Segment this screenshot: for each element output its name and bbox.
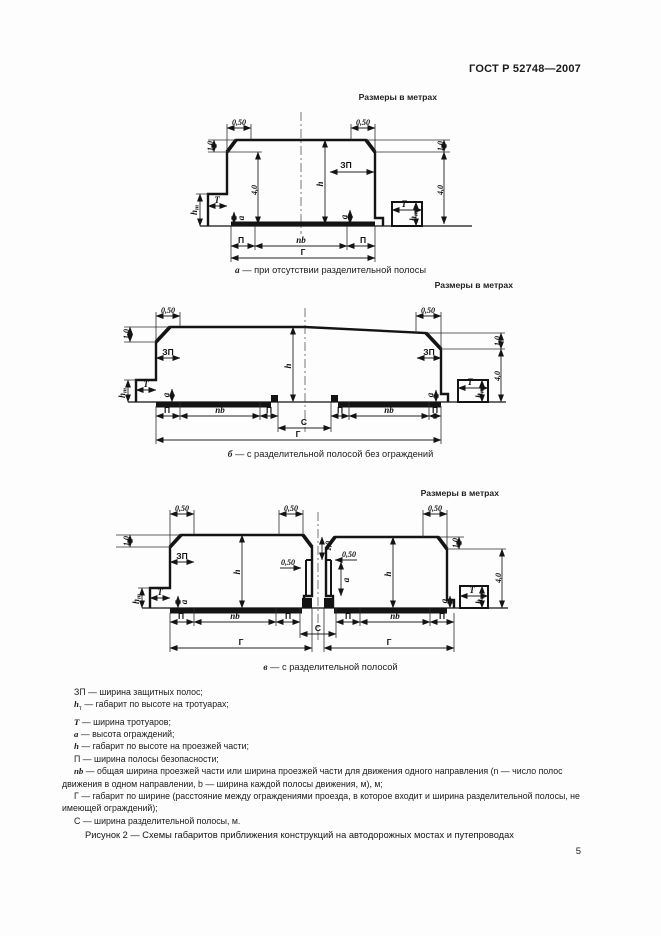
var-label-T: Т (143, 379, 149, 389)
units-note-v: Размеры в метрах (421, 488, 499, 498)
caption-diagram-v: в — с разделительной полосой (0, 662, 661, 673)
var-label-ht: hт (474, 388, 486, 398)
var-label-T: Т (469, 585, 475, 595)
dim-label: 0,50 (356, 118, 370, 127)
dim-label: 0,50 (342, 550, 356, 559)
chamfer-edges (156, 327, 441, 349)
label-P: П (266, 405, 272, 415)
var-label-a: а (339, 214, 349, 219)
clearance-outline-left (150, 535, 312, 608)
var-label-a: а (425, 392, 435, 397)
caption-text-a: — при отсутствии разделительной полосы (242, 265, 426, 275)
legend-term: П (74, 754, 80, 764)
label-P: П (439, 611, 445, 621)
var-label-nb: nb (390, 611, 400, 621)
diagram-b-median-no-barriers: 0,50 0,50 1,0 1,0 4,0 ЗП ЗП h hт Т а а Т… (98, 294, 563, 454)
label-G: Г (296, 429, 301, 439)
var-label-nb: nb (296, 235, 306, 245)
units-note-a: Размеры в метрах (359, 92, 437, 102)
dim-label: 0,50 (428, 504, 442, 513)
legend-item: Г — габарит по ширине (расстояние между … (62, 790, 602, 815)
dim-label: 4,0 (250, 185, 259, 196)
dim-label: 1,0 (493, 336, 502, 346)
label-zp: ЗП (423, 347, 434, 357)
var-label-h: h (315, 181, 325, 186)
label-P: П (164, 405, 170, 415)
var-label-T: Т (467, 377, 473, 387)
caption-letter-v: в (263, 663, 267, 673)
diagram-v-median-with-barriers: 0,50 0,50 0,50 1,0 1,0 0,50 0,50 а ЗП h … (98, 500, 563, 660)
legend-text: — высота ограждений; (81, 729, 175, 739)
legend-text: — габарит по высоте на тротуарах; (84, 699, 228, 709)
var-label-a: а (236, 215, 246, 220)
var-label-T: Т (157, 587, 163, 597)
caption-diagram-b: б — с разделительной полосой без огражде… (0, 449, 661, 460)
var-label-ht: hт (117, 388, 129, 398)
median-curb (271, 395, 278, 402)
caption-text-v: — с разделительной полосой (270, 662, 398, 672)
var-label-h: h (283, 363, 293, 368)
legend-text: — габарит по ширине (расстояние между ог… (62, 791, 580, 813)
var-label-a: а (341, 577, 351, 582)
label-G: Г (387, 637, 392, 647)
label-G: Г (301, 247, 306, 257)
label-P: П (285, 611, 291, 621)
legend-term: Т (74, 717, 79, 727)
legend-item: а — высота ограждений; (62, 728, 602, 740)
legend-item: h — габарит по высоте на проезжей части; (62, 740, 602, 752)
var-label-h: h (232, 569, 242, 574)
label-P: П (360, 235, 366, 245)
dim-label: 0,50 (161, 306, 175, 315)
legend-item: hт — габарит по высоте на тротуарах; (62, 698, 602, 715)
label-P: П (432, 405, 438, 415)
median-curb (331, 395, 338, 402)
dim-label: 1,0 (206, 141, 215, 151)
legend-item: С — ширина разделительной полосы, м. (62, 815, 602, 827)
var-label-nb: nb (384, 405, 394, 415)
diagram-a-no-median: 0,50 0,50 1,0 1,0 4,0 4,0 h ЗП а а Т hт … (170, 106, 500, 264)
dim-label: 4,0 (493, 371, 502, 382)
dim-label: 1,0 (324, 541, 333, 551)
barrier-base (302, 598, 312, 608)
label-zp: ЗП (176, 551, 187, 561)
legend-term: nb (74, 766, 83, 776)
standard-number-header: ГОСТ Р 52748—2007 (469, 63, 581, 75)
label-G: Г (239, 637, 244, 647)
units-note-b: Размеры в метрах (435, 280, 513, 290)
dim-label: 1,0 (451, 538, 460, 548)
dim-label: 1,0 (122, 536, 131, 546)
legend-text: — ширина разделительной полосы, м. (83, 816, 241, 826)
var-label-ht: hт (189, 205, 201, 215)
dim-label: 0,50 (281, 558, 295, 567)
legend-term: h (74, 741, 79, 751)
label-P: П (337, 405, 343, 415)
legend-term-sub: т (79, 705, 82, 712)
label-C: С (301, 417, 307, 427)
legend-item: ЗП — ширина защитных полос; (62, 686, 602, 698)
label-zp: ЗП (340, 160, 351, 170)
legend-text: — общая ширина проезжей части или ширина… (62, 766, 563, 788)
legend-term: Г (74, 791, 79, 801)
label-P: П (345, 611, 351, 621)
var-label-h: h (383, 571, 393, 576)
extension-lines (124, 312, 505, 444)
legend-text: — габарит по высоте на проезжей части; (81, 741, 249, 751)
legend-term: а (74, 729, 78, 739)
legend-text: — ширина защитных полос; (88, 687, 203, 697)
dim-label: 0,50 (175, 504, 189, 513)
legend-item: П — ширина полосы безопасности; (62, 753, 602, 765)
dim-label: 4,0 (494, 573, 503, 584)
median-barriers (306, 560, 331, 596)
dim-label: 1,0 (122, 329, 131, 339)
var-label-ht: hт (408, 211, 420, 221)
var-label-a: а (439, 598, 449, 603)
legend-item: Т — ширина тротуаров; (62, 716, 602, 728)
var-label-nb: nb (230, 611, 240, 621)
var-label-a: а (161, 392, 171, 397)
legend-text: — ширина тротуаров; (82, 717, 171, 727)
var-label-ht: hт (131, 594, 143, 604)
dim-label: 1,0 (436, 141, 445, 151)
dim-label: 0,50 (421, 306, 435, 315)
legend-list: ЗП — ширина защитных полос; hт — габарит… (62, 686, 602, 827)
var-label-T: Т (214, 195, 220, 205)
page-number: 5 (576, 846, 581, 857)
dim-label: 4,0 (436, 185, 445, 196)
caption-text-b: — с разделительной полосой без ограждени… (235, 449, 433, 459)
figure-caption: Рисунок 2 — Схемы габаритов приближения … (85, 830, 615, 840)
label-P: П (238, 235, 244, 245)
var-label-ht: hт (474, 594, 486, 604)
caption-letter-a: а (235, 266, 240, 276)
label-C: С (315, 623, 321, 633)
barrier-base (324, 598, 334, 608)
caption-letter-b: б (228, 450, 233, 460)
dim-label: 0,50 (284, 504, 298, 513)
var-label-T: Т (401, 199, 407, 209)
legend-term: ЗП (74, 687, 86, 697)
var-label-nb: nb (215, 405, 225, 415)
legend-text: — ширина полосы безопасности; (83, 754, 219, 764)
dim-label: 0,50 (232, 118, 246, 127)
label-zp: ЗП (162, 347, 173, 357)
caption-diagram-a: а — при отсутствии разделительной полосы (0, 265, 661, 276)
label-P: П (178, 611, 184, 621)
var-label-a: а (179, 599, 189, 604)
legend-item: nb — общая ширина проезжей части или шир… (62, 765, 602, 790)
legend-term: С (74, 816, 80, 826)
document-page: ГОСТ Р 52748—2007 Размеры в метрах Разме… (0, 0, 661, 936)
